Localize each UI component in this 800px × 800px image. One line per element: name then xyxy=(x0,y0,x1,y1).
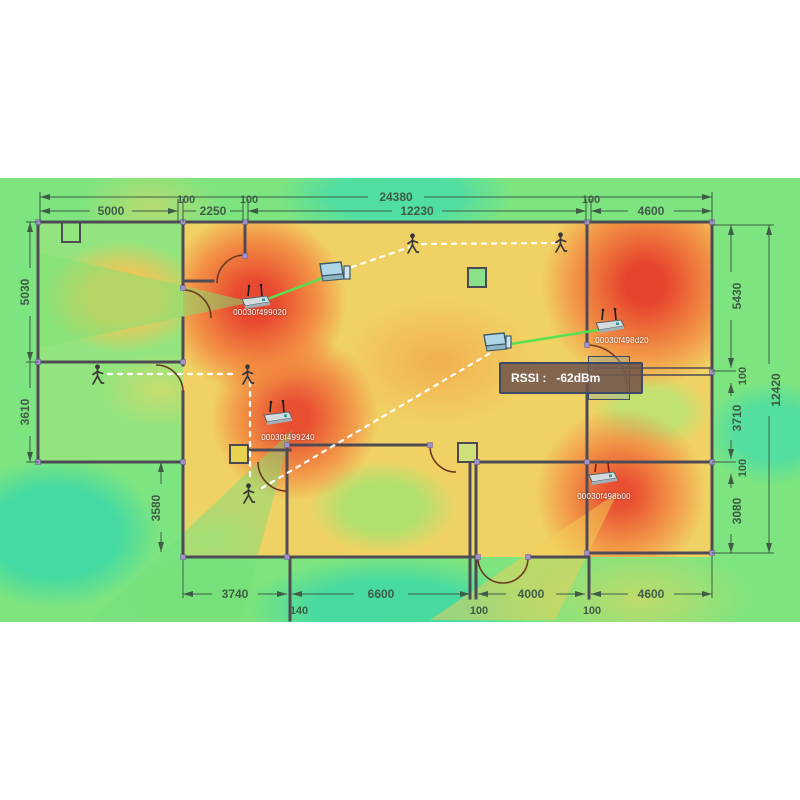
wifi-heatmap-canvas: 24380 5000 100 2250 100 12230 100 4600 5… xyxy=(0,0,800,800)
closet-outline xyxy=(62,222,80,242)
person-2[interactable] xyxy=(553,232,568,260)
rssi-value: -62dBm xyxy=(556,371,600,385)
person-4[interactable] xyxy=(240,364,255,392)
ap4-mac-label: 00030f498b00 xyxy=(577,492,631,501)
dim-bottom-4600: 4600 xyxy=(638,587,665,601)
person-icon xyxy=(553,232,568,255)
dim-bottom-100b: 100 xyxy=(583,605,601,617)
person-icon xyxy=(241,483,256,506)
dim-top-4600: 4600 xyxy=(638,204,665,218)
person-3[interactable] xyxy=(90,364,105,392)
access-point-3[interactable] xyxy=(260,400,296,431)
dim-right-100b: 100 xyxy=(737,459,749,477)
path-laptop1-person1 xyxy=(352,247,410,267)
dim-top-5000: 5000 xyxy=(98,204,125,218)
ap3-mac-label: 00030f499240 xyxy=(261,433,315,442)
dim-bottom-100a: 100 xyxy=(470,605,488,617)
person-icon xyxy=(240,364,255,387)
person-icon xyxy=(90,364,105,387)
dim-right-3710: 3710 xyxy=(730,404,744,431)
dim-right-total: 12420 xyxy=(769,373,783,407)
dim-right-3080: 3080 xyxy=(730,497,744,524)
dim-left-3580: 3580 xyxy=(149,494,163,521)
dim-right-5430: 5430 xyxy=(730,282,744,309)
link-ap2-laptop2 xyxy=(505,330,598,345)
column xyxy=(458,443,477,462)
ap1-mac-label: 00030f499020 xyxy=(233,308,287,317)
column xyxy=(468,268,486,287)
access-point-2[interactable] xyxy=(592,308,628,339)
rssi-label: RSSI : xyxy=(511,371,546,385)
router-icon xyxy=(260,400,296,426)
dim-left-5030: 5030 xyxy=(18,278,32,305)
access-point-4[interactable] xyxy=(585,460,621,491)
laptop-icon xyxy=(318,260,352,284)
dim-top-12230: 12230 xyxy=(400,204,434,218)
dim-bottom-4000: 4000 xyxy=(518,587,545,601)
signal-ray xyxy=(38,252,252,348)
ap2-mac-label: 00030f498d20 xyxy=(595,336,649,345)
dim-bottom-6600: 6600 xyxy=(368,587,395,601)
path-person1-person2 xyxy=(422,243,556,244)
dim-left-3610: 3610 xyxy=(18,398,32,425)
laptop-icon xyxy=(482,331,514,353)
dim-bottom-140: 140 xyxy=(290,605,308,617)
floorplan-svg: 24380 5000 100 2250 100 12230 100 4600 5… xyxy=(0,0,800,800)
dim-bottom-3740: 3740 xyxy=(222,587,249,601)
column xyxy=(230,445,248,463)
dim-top-total: 24380 xyxy=(379,190,413,204)
laptop-2[interactable] xyxy=(482,331,514,358)
path-person5-laptop2 xyxy=(262,352,492,488)
person-5[interactable] xyxy=(241,483,256,511)
person-1[interactable] xyxy=(405,233,420,261)
router-icon xyxy=(238,284,274,310)
dim-right-100a: 100 xyxy=(737,367,749,385)
router-icon xyxy=(585,460,621,486)
person-icon xyxy=(405,233,420,256)
router-icon xyxy=(592,308,628,334)
dim-top-100a: 100 xyxy=(177,194,195,206)
laptop-1[interactable] xyxy=(318,260,352,289)
dim-top-2250: 2250 xyxy=(200,204,227,218)
rssi-tooltip: RSSI : -62dBm xyxy=(499,362,643,394)
